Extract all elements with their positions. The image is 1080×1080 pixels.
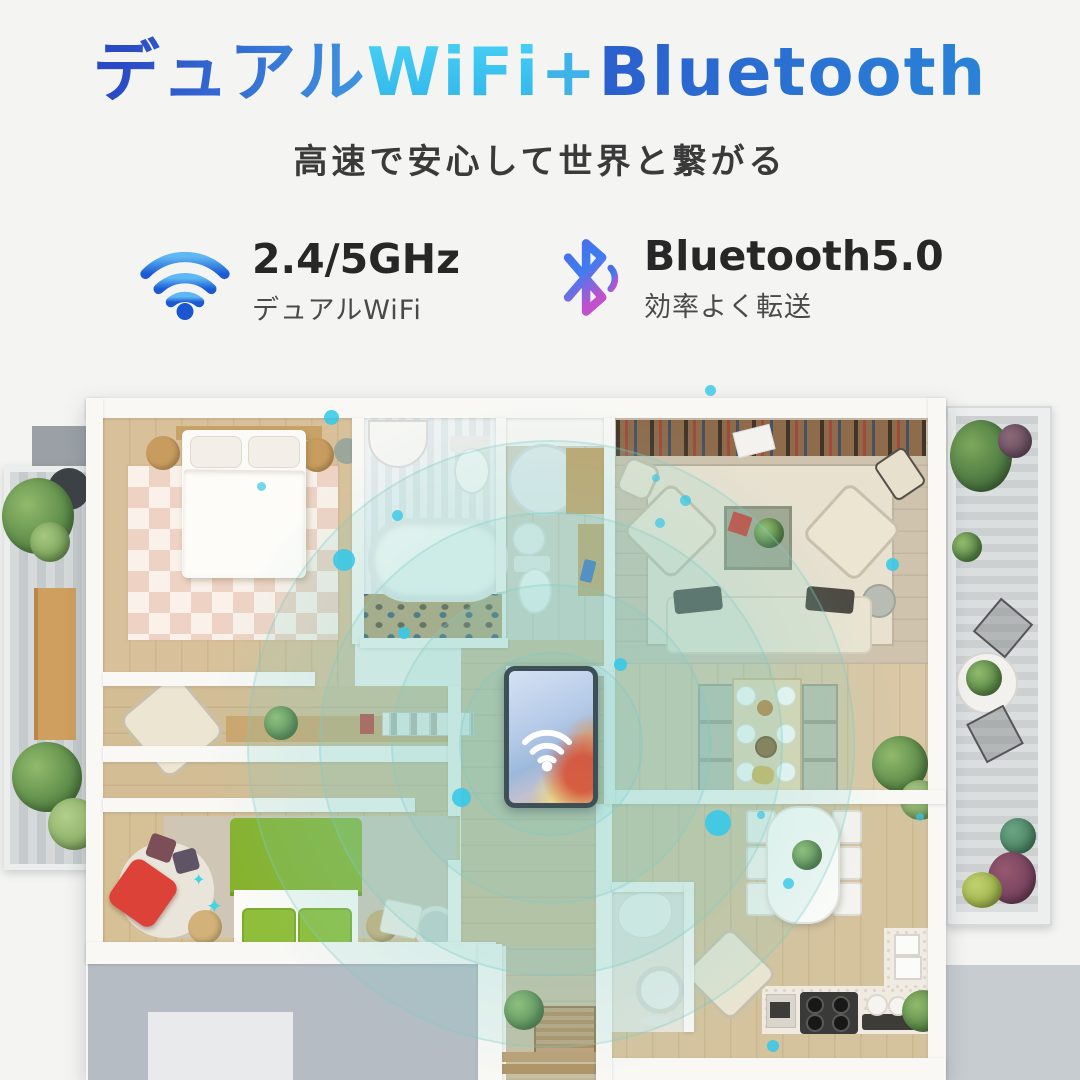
advertisement-page: デュアルWiFi+Bluetooth 高速で安心して世界と繋がる 2.4/5GH… bbox=[0, 0, 1080, 1080]
stove-burner bbox=[832, 996, 850, 1014]
balcony-bench bbox=[34, 588, 76, 740]
title-segment-dual: デュアル bbox=[93, 33, 367, 111]
signal-dot bbox=[398, 627, 410, 639]
bowl bbox=[866, 994, 888, 1016]
signal-dot bbox=[652, 474, 660, 482]
signal-dot bbox=[257, 482, 266, 491]
signal-dot bbox=[757, 811, 765, 819]
signal-dot bbox=[705, 810, 731, 836]
signal-dot bbox=[680, 495, 691, 506]
stove-burner bbox=[832, 1014, 850, 1032]
bed-pillow bbox=[248, 436, 300, 468]
terrace-plant bbox=[952, 532, 982, 562]
feature-bluetooth-subtitle: 効率よく転送 bbox=[644, 285, 944, 324]
signal-dot bbox=[655, 518, 665, 528]
tablet-wifi-icon bbox=[518, 722, 576, 776]
terrace-table-plant bbox=[966, 660, 1002, 696]
signal-sparkle: ✦ bbox=[192, 870, 205, 889]
signal-dot bbox=[705, 385, 716, 396]
kitchen-sink bbox=[894, 956, 922, 980]
stove-burner bbox=[806, 996, 824, 1014]
terrace-plant bbox=[1000, 818, 1036, 854]
title-segment-wifi: WiFi bbox=[367, 33, 541, 111]
feature-bluetooth-title: Bluetooth5.0 bbox=[644, 235, 944, 278]
wifi-icon bbox=[138, 240, 232, 325]
signal-sparkle: ✦ bbox=[206, 894, 223, 918]
kitchen-sink bbox=[894, 934, 920, 956]
signal-dot bbox=[886, 558, 899, 571]
signal-dot bbox=[392, 510, 403, 521]
page-title: デュアルWiFi+Bluetooth bbox=[0, 18, 1080, 115]
signal-dot bbox=[767, 1040, 779, 1052]
stove-burner bbox=[806, 1014, 824, 1032]
nightstand bbox=[146, 436, 180, 470]
terrace-plant bbox=[998, 424, 1032, 458]
bed-pillow bbox=[190, 436, 242, 468]
page-subtitle: 高速で安心して世界と繋がる bbox=[0, 134, 1080, 183]
signal-dot bbox=[916, 813, 924, 821]
ground-step bbox=[148, 1012, 293, 1080]
signal-dot bbox=[333, 549, 355, 571]
feature-wifi-title: 2.4/5GHz bbox=[252, 238, 460, 281]
signal-dot bbox=[452, 788, 471, 807]
title-segment-plus: + bbox=[540, 33, 598, 111]
wall-exterior-left bbox=[86, 398, 103, 962]
feature-wifi: 2.4/5GHz デュアルWiFi bbox=[138, 238, 460, 327]
bluetooth-icon bbox=[552, 232, 624, 327]
wall-exterior-right bbox=[928, 398, 946, 1080]
terrace-plant bbox=[962, 872, 1002, 908]
signal-dot bbox=[783, 878, 794, 889]
ground-shadow-right bbox=[940, 965, 1080, 1080]
title-segment-bluetooth: Bluetooth bbox=[598, 33, 987, 111]
feature-bluetooth: Bluetooth5.0 効率よく転送 bbox=[552, 232, 944, 327]
signal-dot bbox=[324, 410, 339, 425]
balcony-plant bbox=[30, 522, 70, 562]
feature-wifi-subtitle: デュアルWiFi bbox=[252, 288, 460, 327]
signal-dot bbox=[614, 658, 627, 671]
